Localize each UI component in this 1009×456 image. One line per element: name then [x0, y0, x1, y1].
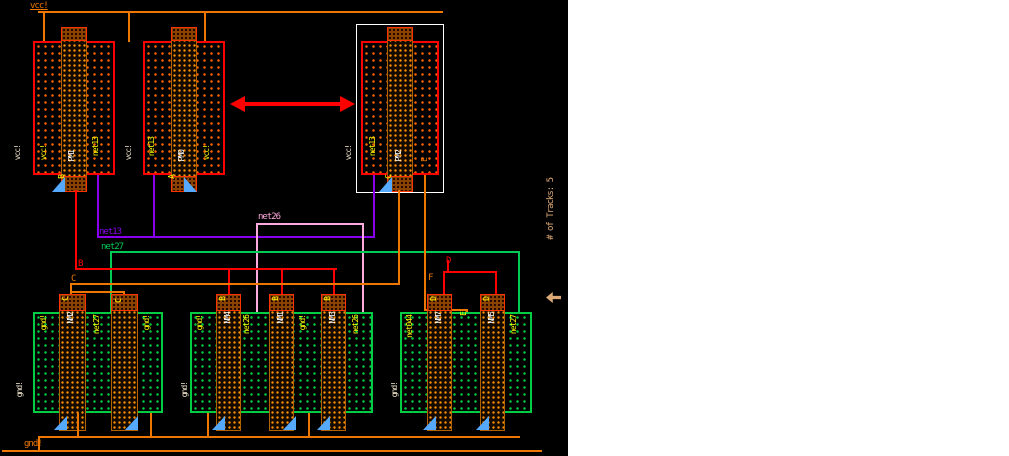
pm0-gate-net-label: A	[168, 175, 176, 179]
gnd-drop-wire[interactable]	[308, 413, 310, 437]
double-arrow-shaft	[243, 102, 343, 106]
nm5-name-label: NM5	[488, 312, 496, 323]
double-arrow-right-head	[340, 96, 355, 112]
cursor-arrow-icon	[546, 292, 561, 303]
pm2-source-label: net13	[369, 137, 377, 156]
pm2-name-label: PM2	[395, 150, 403, 161]
net-c-wire[interactable]	[70, 291, 125, 293]
net26-wire[interactable]	[362, 223, 364, 315]
net26-label: net26	[258, 213, 280, 222]
nm3-name-label: NM3	[329, 312, 337, 323]
nmos-left-sd1-label: gnd!	[40, 315, 48, 330]
pm1-gate-contact-top[interactable]	[61, 27, 87, 41]
nmos-mid-sd2-label: net26	[243, 315, 251, 334]
net13-wire[interactable]	[97, 236, 375, 238]
pm1-gate[interactable]	[61, 27, 87, 192]
net-b-label: B	[78, 260, 82, 269]
vcc-drop-wire[interactable]	[128, 11, 130, 42]
net26-wire[interactable]	[256, 223, 364, 225]
pm0-gate[interactable]	[171, 27, 197, 192]
net27-label: net27	[101, 243, 123, 252]
nmos-left-well-label: gnd!	[16, 382, 24, 397]
nmos-mid-well-label: gnd!	[181, 382, 189, 397]
layout-canvas[interactable]: vcc! net13 net26 net27 B C	[0, 0, 568, 456]
nm7-gate-net-label: D	[430, 297, 438, 301]
net-c-label: C	[71, 275, 75, 284]
net-b-wire[interactable]	[75, 268, 337, 270]
nm3-gate-net-label: B	[324, 297, 332, 301]
pm1-source-label: vcc!	[40, 145, 48, 160]
nm2-gate2-net-label: C	[115, 299, 123, 303]
net27-wire[interactable]	[518, 251, 520, 314]
nmos-mid-sd4-label: net26	[352, 315, 360, 334]
nm7-name-label: NM7	[435, 312, 443, 323]
net-f-label: F	[428, 274, 432, 283]
nmos-right-well-label: gnd!	[391, 382, 399, 397]
gnd-rail-wire[interactable]	[38, 436, 520, 438]
vcc-rail-label: vcc!	[30, 2, 48, 11]
vcc-drop-wire[interactable]	[204, 11, 206, 42]
gnd-drop-wire[interactable]	[150, 413, 152, 437]
nm4-name-label: NM4	[224, 312, 232, 323]
net13-wire[interactable]	[373, 175, 375, 238]
nm2-gate2[interactable]	[111, 294, 138, 431]
nmos-right-sd3-label: net27	[510, 315, 518, 334]
nmos-right-sd2-label: E	[460, 312, 468, 316]
nm5-gate-net-label: D	[483, 297, 491, 301]
pm0-gate-contact-top[interactable]	[171, 27, 197, 41]
gnd-rail-wire[interactable]	[2, 450, 542, 452]
net13-label: net13	[99, 228, 121, 237]
net-c-wire[interactable]	[70, 283, 400, 285]
nmos-mid-sd1-label: gnd!	[196, 315, 204, 330]
gnd-drop-wire[interactable]	[77, 413, 79, 437]
nmos-mid-sd3-label: gnd!	[299, 315, 307, 330]
pm0-well-label: vcc!	[125, 145, 133, 160]
vcc-drop-wire[interactable]	[43, 11, 45, 42]
net13-wire[interactable]	[153, 175, 155, 238]
net-b-wire[interactable]	[75, 190, 77, 270]
pm2-gate[interactable]	[387, 27, 413, 192]
pm2-drain-label: E	[421, 158, 429, 162]
net-e-wire[interactable]	[424, 175, 426, 311]
net-c-wire[interactable]	[398, 190, 400, 285]
pm0-source-label: net13	[148, 137, 156, 156]
nm4-gate-net-label: B	[219, 297, 227, 301]
pm2-well-label: vcc!	[345, 145, 353, 160]
nmos-right-sd1-label: net044	[406, 315, 414, 338]
pm1-gate-net-label: B	[58, 175, 66, 179]
pm2-gate-contact-top[interactable]	[387, 27, 413, 41]
nmos-left-sd3-label: gnd!	[143, 315, 151, 330]
net-d-label: D	[446, 257, 450, 266]
blank-right-panel	[568, 0, 1009, 456]
pm1-well-label: vcc!	[14, 145, 22, 160]
net-d-wire[interactable]	[495, 271, 497, 296]
gnd-rail-label: gnd!	[24, 440, 42, 449]
net-d-wire[interactable]	[443, 271, 497, 273]
nm1-gate-net-label: B	[272, 297, 280, 301]
pm1-name-label: PM1	[68, 150, 76, 161]
nm1-name-label: NM1	[277, 312, 285, 323]
net-d-wire[interactable]	[443, 271, 445, 296]
tracks-count-label: # of Tracks: 5	[547, 178, 556, 240]
vcc-rail-wire[interactable]	[38, 11, 443, 13]
pm0-drain-label: vcc!	[203, 145, 211, 160]
gnd-drop-wire[interactable]	[207, 413, 209, 437]
nm2-gate1-net-label: C	[62, 297, 70, 301]
pm2-gate-net-label: C	[385, 175, 393, 179]
pm0-name-label: PM0	[178, 150, 186, 161]
nmos-left-sd2-label: net27	[93, 315, 101, 334]
net27-wire[interactable]	[110, 251, 520, 253]
nm2-name-label: NM2	[67, 312, 75, 323]
pm1-drain-label: net13	[92, 137, 100, 156]
